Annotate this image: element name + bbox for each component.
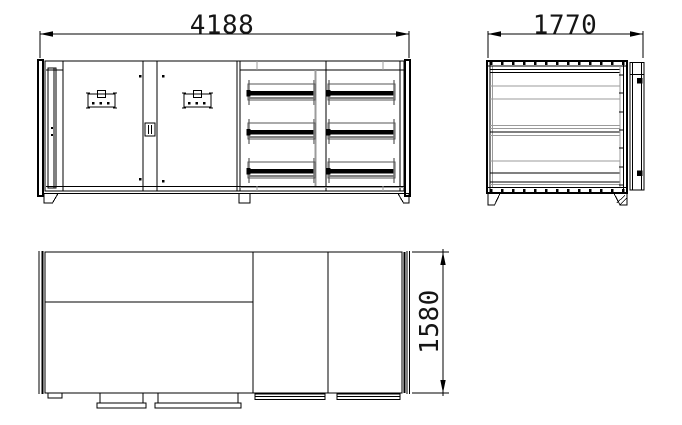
louver-slat xyxy=(247,158,316,183)
hinge-screw xyxy=(162,180,165,183)
plan-skid-right xyxy=(155,393,241,408)
door-left-lock-plate xyxy=(86,91,117,109)
side-right-stile xyxy=(619,61,624,193)
side-cabinet-body xyxy=(487,61,644,205)
plan-depth-value: 1580 xyxy=(415,289,445,354)
plan-rail-right xyxy=(337,394,400,400)
side-width-value: 1770 xyxy=(533,11,598,41)
hinge-block xyxy=(637,78,643,84)
foot-middle xyxy=(239,194,250,204)
side-width-dimension: 1770 xyxy=(488,11,643,59)
drawing-sheet: 4188 xyxy=(0,0,682,425)
dim-arrow-right xyxy=(630,31,643,36)
front-view: 4188 xyxy=(0,0,410,203)
foot-right xyxy=(398,194,409,204)
dim-arrow-top xyxy=(440,252,445,265)
louver-slat xyxy=(327,158,396,183)
front-width-dimension: 4188 xyxy=(40,11,409,59)
center-mullion xyxy=(143,61,157,191)
plan-depth-dimension: 1580 xyxy=(412,249,449,396)
dim-arrow-bottom xyxy=(440,380,445,393)
louver-slat xyxy=(327,80,396,105)
front-width-value: 4188 xyxy=(190,11,255,41)
cad-drawing-canvas: 4188 xyxy=(0,0,682,425)
louver-slat xyxy=(327,119,396,144)
door-right xyxy=(162,75,213,183)
hinge-screw xyxy=(139,75,142,78)
door-right-lock-plate xyxy=(182,91,213,109)
front-feet xyxy=(44,194,409,204)
left-end-flange xyxy=(38,60,43,196)
foot-left xyxy=(44,194,58,204)
hinge-screw xyxy=(162,75,165,78)
side-feet xyxy=(488,194,627,206)
dim-arrow-left xyxy=(488,31,501,36)
mullion-latch xyxy=(145,123,155,136)
plan-body xyxy=(39,251,410,408)
louver-slat xyxy=(247,119,316,144)
foot-left xyxy=(488,194,500,206)
dim-arrow-right xyxy=(396,31,409,36)
louver-slat xyxy=(247,80,316,105)
hinge-block xyxy=(637,171,643,177)
side-view: 1770 xyxy=(487,11,644,206)
plan-rail-left xyxy=(255,394,325,400)
plan-view: 1580 xyxy=(39,249,449,408)
door-left xyxy=(0,0,142,181)
dim-arrow-left xyxy=(40,31,53,36)
hinge-screw xyxy=(139,178,142,181)
plan-skid-left xyxy=(97,393,146,408)
louver-section xyxy=(237,61,404,191)
right-end-flange xyxy=(405,60,410,196)
side-panel-lines xyxy=(490,70,620,185)
plan-outline xyxy=(45,252,402,393)
side-door-edge xyxy=(630,63,644,191)
access-panel xyxy=(46,61,63,191)
plan-step xyxy=(48,393,62,398)
